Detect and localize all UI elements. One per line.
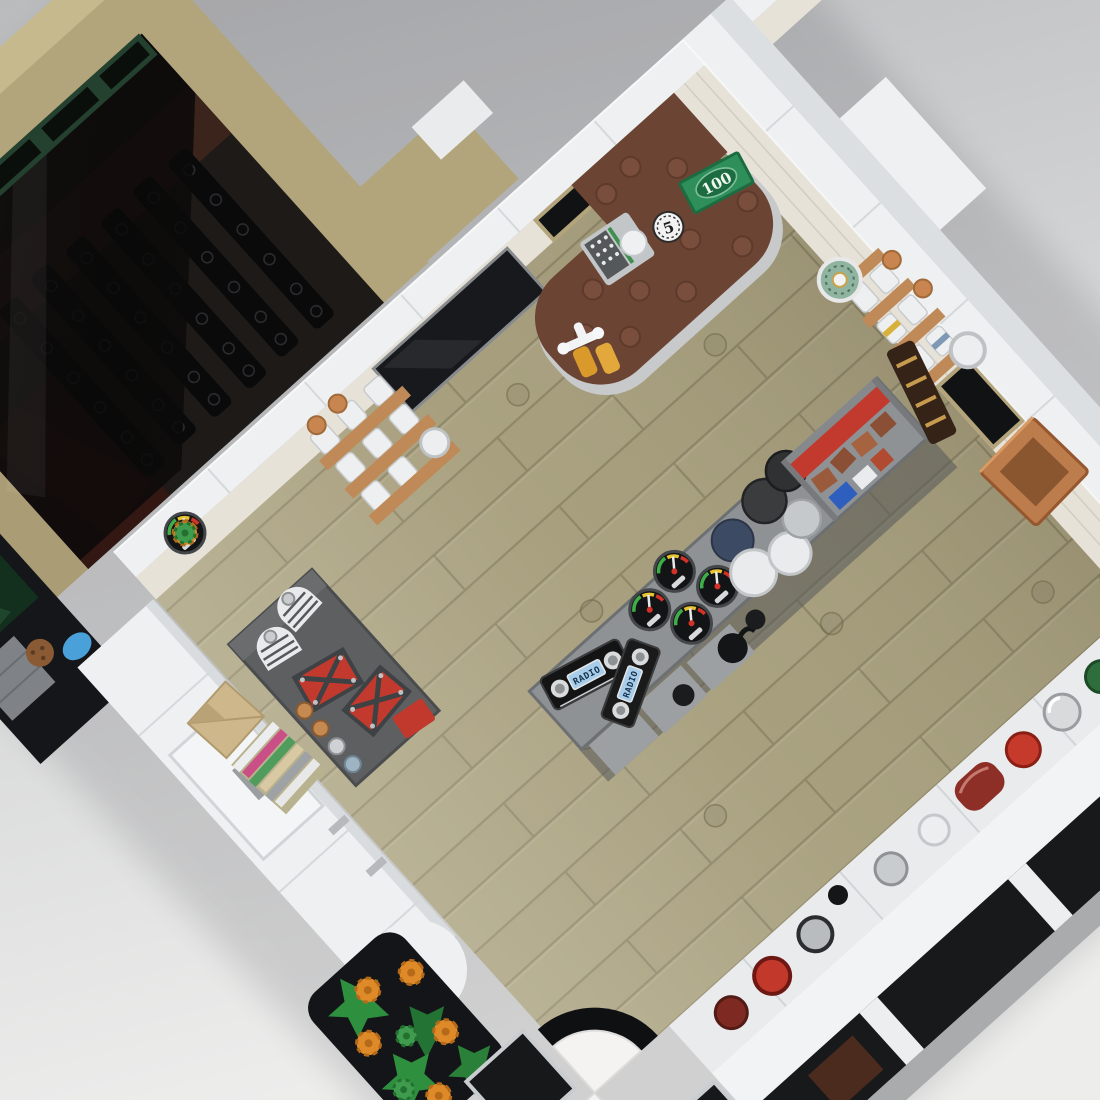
render-canvas: 5 100 xyxy=(0,0,1100,1100)
lego-interior-render: 5 100 xyxy=(0,0,1100,1100)
